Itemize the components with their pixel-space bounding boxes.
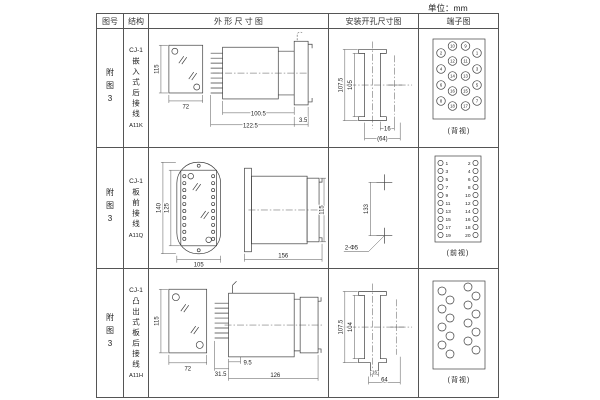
row2-terminal-numbers: 12 34 56 78 910 1112 1314 1516 1718 1920 [446, 161, 471, 239]
terminal-number: 15 [463, 88, 468, 93]
row1-fig-label: 附图3 [105, 68, 116, 108]
dim-total-length: 122.5 [243, 123, 259, 129]
terminal-number: 12 [450, 58, 455, 63]
dim-body-length: 100.5 [251, 111, 267, 117]
terminal-number: 18 [450, 103, 455, 108]
terminal-number: 17 [463, 103, 468, 108]
row2-side-view: 156 115 [244, 168, 326, 261]
row3-model: CJ-1 [129, 287, 143, 294]
dim-hole-span: 64 [381, 377, 388, 383]
row2-mounting-svg: 133 2-Φ5 [329, 148, 418, 269]
dim-side-height: 115 [320, 204, 326, 214]
terminal-number: 10 [450, 43, 455, 48]
row3-mounting-svg: 107.5 104 16 64 [329, 269, 418, 397]
dim-cutout-outer-h: 107.5 [338, 76, 344, 92]
row1-mounting-svg: 107.5 105 16 (64) [329, 29, 418, 148]
dim-flange-width: 105 [194, 262, 205, 268]
header-fig-no: 图号 [97, 14, 124, 29]
terminal-number: 16 [465, 217, 471, 223]
row2-mounting-diagram: 133 2-Φ5 [329, 148, 419, 269]
row1-outline-svg: 115 72 100.5 122.5 3.5 [149, 29, 328, 148]
terminal-number: 8 [468, 185, 471, 191]
dim-front-width: 72 [184, 366, 191, 372]
row1-view-label: (背视) [448, 126, 471, 135]
terminal-number: 11 [463, 58, 468, 63]
row1-structure-text: 嵌入式后接线 [131, 57, 142, 120]
terminal-number: 15 [446, 217, 452, 223]
row3-mounting-diagram: 107.5 104 16 64 [329, 269, 419, 397]
row2-view-label: (前视) [447, 248, 470, 257]
row3-fig-no: 附图3 [97, 269, 124, 397]
row3-front-view: 115 72 [154, 289, 206, 372]
row3-structure: CJ-1 凸出式板后接线 A11H [124, 269, 149, 397]
dim-side-length: 156 [278, 253, 289, 259]
row2-fig-no: 附图3 [97, 148, 124, 269]
row2-terminal-diagram: 12 34 56 78 910 1112 1314 1516 1718 1920… [419, 148, 498, 269]
terminal-number: 12 [465, 201, 471, 207]
dim-front-height: 115 [154, 316, 160, 326]
row1-mounting-diagram: 107.5 105 16 (64) [329, 29, 419, 148]
row1-terminal-circles: 2 4 6 8 10 12 14 16 18 9 11 13 15 17 1 3 [437, 41, 482, 110]
dim-hole-span: (64) [377, 136, 388, 142]
row3-terminal-diagram: (背视) [419, 269, 498, 397]
header-outline: 外 形 尺 寸 图 [149, 14, 329, 29]
dim-front-height: 115 [154, 63, 160, 73]
row1-front-view: 115 72 [154, 45, 202, 110]
dim-body-length: 126 [270, 373, 281, 379]
terminal-number: 18 [465, 225, 471, 231]
row2-front-view: 140 125 105 [156, 162, 220, 268]
row3-fig-label: 附图3 [105, 313, 116, 353]
dim-cutout-inner-h: 105 [348, 79, 354, 90]
dim-cutout-outer-h: 107.5 [338, 319, 344, 335]
dim-front-width: 72 [182, 104, 189, 110]
row2-structure-text: 板前接线 [131, 188, 142, 230]
terminal-number: 19 [446, 233, 452, 239]
terminal-number: 13 [463, 73, 468, 78]
row1-side-view: 100.5 122.5 3.5 [211, 32, 312, 129]
row2-code: A11Q [129, 233, 143, 239]
row1-fig-no: 附图3 [97, 29, 124, 148]
terminal-number: 4 [468, 169, 471, 175]
row1-code: A11K [129, 123, 143, 129]
row3-side-view: 9.5 31.5 126 [215, 281, 322, 380]
row3-terminal-svg: (背视) [419, 269, 498, 397]
row1-model: CJ-1 [129, 47, 143, 54]
terminal-number: 2 [468, 161, 471, 167]
terminal-number: 11 [446, 201, 451, 207]
row1-terminal-svg: 2 4 6 8 10 12 14 16 18 9 11 13 15 17 1 3 [419, 29, 498, 148]
dim-flange-thickness: 3.5 [299, 117, 308, 123]
row1-terminal-diagram: 2 4 6 8 10 12 14 16 18 9 11 13 15 17 1 3 [419, 29, 498, 148]
terminal-number: 10 [465, 193, 471, 199]
row1-outline-diagram: 115 72 100.5 122.5 3.5 [149, 29, 329, 148]
row3-view-label: (背视) [448, 375, 471, 384]
header-structure: 结构 [124, 14, 149, 29]
terminal-number: 14 [465, 209, 471, 215]
dim-hole-pitch: 133 [364, 203, 370, 214]
terminal-number: 20 [465, 233, 471, 239]
row3-outline-svg: 115 72 9.5 31.5 126 [149, 269, 328, 397]
dim-flange-height: 140 [156, 202, 162, 213]
dim-notch-width: 16 [372, 370, 377, 375]
row1-structure: CJ-1 嵌入式后接线 A11K [124, 29, 149, 148]
row3-outline-diagram: 115 72 9.5 31.5 126 [149, 269, 329, 397]
header-mounting: 安装开孔尺寸图 [329, 14, 419, 29]
dim-cutout-inner-h: 104 [348, 321, 354, 332]
terminal-number: 6 [468, 177, 471, 183]
dim-body-height: 125 [164, 202, 170, 213]
dim-hole-note: 2-Φ5 [345, 245, 359, 251]
row2-outline-svg: 140 125 105 156 115 [149, 148, 328, 269]
terminal-number: 13 [446, 209, 452, 215]
terminal-number: 7 [446, 185, 449, 191]
row2-fig-label: 附图3 [105, 188, 116, 228]
row3-code: A11H [129, 373, 143, 379]
terminal-number: 16 [450, 88, 455, 93]
dimension-table: 图号 结构 外 形 尺 寸 图 安装开孔尺寸图 端子图 附图3 CJ-1 嵌入式… [96, 13, 499, 398]
dim-pin-length: 31.5 [215, 372, 227, 378]
terminal-number: 14 [450, 73, 455, 78]
row2-terminal-circles [438, 160, 478, 237]
terminal-number: 5 [446, 177, 449, 183]
spec-sheet-page: 单位：mm 图号 结构 外 形 尺 寸 图 安装开孔尺寸图 端子图 附图3 CJ… [0, 0, 600, 400]
row2-terminal-svg: 12 34 56 78 910 1112 1314 1516 1718 1920… [419, 148, 498, 269]
row2-structure: CJ-1 板前接线 A11Q [124, 148, 149, 269]
row3-terminal-circles [438, 283, 480, 358]
dim-hole-offset: 16 [384, 126, 391, 132]
terminal-number: 1 [446, 161, 449, 167]
row2-outline-diagram: 140 125 105 156 115 [149, 148, 329, 269]
row2-model: CJ-1 [129, 178, 143, 185]
row2-terminal-dots [183, 174, 215, 240]
terminal-number: 17 [446, 225, 452, 231]
header-terminal: 端子图 [419, 14, 498, 29]
row3-structure-text: 凸出式板后接线 [131, 297, 142, 371]
terminal-number: 9 [446, 193, 449, 199]
dim-stub-length: 9.5 [243, 360, 252, 366]
terminal-number: 3 [446, 169, 449, 175]
